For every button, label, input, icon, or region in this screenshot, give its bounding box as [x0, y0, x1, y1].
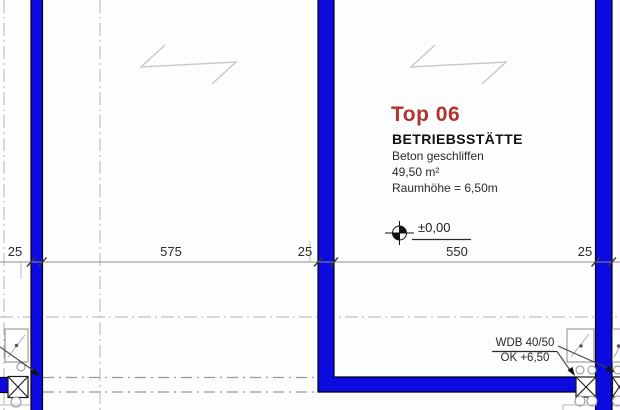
dimension-label-0: 25	[3, 245, 27, 260]
floor-plan: 25 575 25 550 25 Top 06 BETRIEBSSTÄTTE B…	[0, 0, 620, 410]
unit-room-height: Raumhöhe = 6,50m	[392, 182, 498, 196]
dimension-label-2: 25	[293, 245, 317, 260]
column-assembly-right-outer	[613, 329, 620, 406]
column-assembly-right-inner	[563, 329, 597, 410]
unit-type: BETRIEBSSTÄTTE	[392, 131, 523, 147]
dimension-label-3: 550	[432, 245, 482, 260]
left-wall-stub	[0, 378, 8, 393]
wdb-note-line1: WDB 40/50	[490, 337, 560, 350]
right-wall	[596, 0, 613, 410]
unit-title: Top 06	[391, 103, 460, 127]
dimension-label-4: 25	[573, 245, 597, 260]
unit-finish: Beton geschliffen	[392, 150, 484, 164]
level-marker-label: ±0,00	[418, 221, 450, 236]
unit-area: 49,50 m²	[392, 166, 439, 180]
opening-symbol-left	[141, 45, 236, 84]
center-and-bottom-wall	[318, 0, 576, 392]
gate-dashed-lines	[43, 378, 318, 393]
dimension-label-1: 575	[146, 245, 196, 260]
left-wall	[31, 0, 43, 410]
wdb-note-line2: OK +6,50	[490, 352, 560, 365]
opening-symbol-right	[411, 45, 506, 84]
